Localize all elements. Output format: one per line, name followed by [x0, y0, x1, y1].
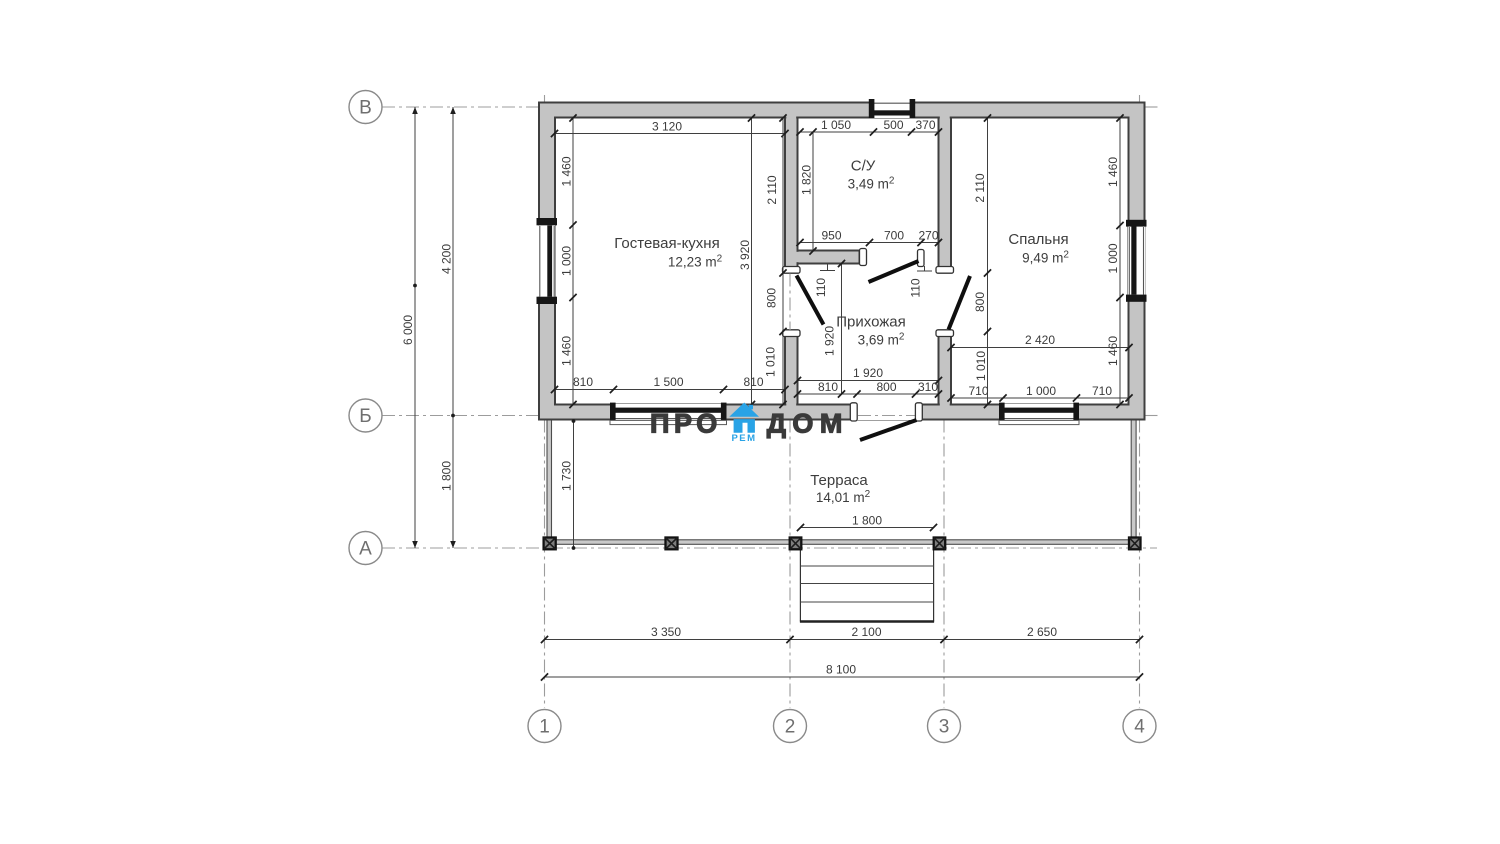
svg-text:950: 950: [821, 229, 841, 243]
svg-text:1 730: 1 730: [560, 461, 574, 491]
svg-text:3 920: 3 920: [738, 240, 752, 270]
svg-text:710: 710: [1092, 384, 1112, 398]
svg-text:1 010: 1 010: [974, 351, 988, 381]
svg-text:2 650: 2 650: [1027, 625, 1057, 639]
svg-text:710: 710: [968, 384, 988, 398]
svg-text:310: 310: [918, 380, 938, 394]
svg-text:Гостевая-кухня: Гостевая-кухня: [614, 235, 719, 252]
svg-text:3,69 m2: 3,69 m2: [858, 332, 905, 348]
svg-text:РЕМ: РЕМ: [731, 433, 756, 444]
svg-text:1 820: 1 820: [800, 165, 814, 195]
svg-text:3: 3: [939, 717, 950, 738]
svg-text:1 050: 1 050: [821, 118, 851, 132]
svg-text:1 800: 1 800: [852, 514, 882, 528]
svg-text:500: 500: [883, 118, 903, 132]
svg-text:12,23 m2: 12,23 m2: [668, 254, 723, 270]
svg-text:1 460: 1 460: [1106, 336, 1120, 366]
svg-text:270: 270: [918, 229, 938, 243]
svg-text:Спальня: Спальня: [1008, 231, 1068, 248]
svg-text:2: 2: [785, 717, 796, 738]
svg-text:1 460: 1 460: [1106, 157, 1120, 187]
svg-text:Терраса: Терраса: [810, 472, 868, 489]
svg-text:3,49 m2: 3,49 m2: [848, 176, 895, 192]
svg-text:1 800: 1 800: [440, 461, 454, 491]
svg-text:1 000: 1 000: [1026, 384, 1056, 398]
svg-text:800: 800: [876, 380, 896, 394]
svg-text:1 920: 1 920: [823, 326, 837, 356]
svg-text:С/У: С/У: [851, 158, 876, 175]
svg-text:2 110: 2 110: [765, 175, 779, 204]
svg-text:Б: Б: [359, 406, 371, 427]
svg-text:370: 370: [915, 118, 935, 132]
svg-text:4 200: 4 200: [440, 244, 454, 274]
svg-text:1 000: 1 000: [560, 246, 574, 276]
svg-text:6 000: 6 000: [401, 315, 415, 345]
svg-text:Прихожая: Прихожая: [836, 314, 906, 331]
svg-text:810: 810: [573, 375, 593, 389]
svg-text:1 500: 1 500: [653, 375, 683, 389]
svg-text:1 000: 1 000: [1106, 243, 1120, 273]
svg-text:110: 110: [909, 278, 923, 297]
svg-text:1 460: 1 460: [560, 336, 574, 366]
svg-text:1: 1: [539, 717, 550, 738]
svg-text:3 350: 3 350: [651, 625, 681, 639]
svg-text:110: 110: [814, 278, 828, 297]
svg-text:9,49 m2: 9,49 m2: [1022, 250, 1069, 266]
svg-text:810: 810: [818, 380, 838, 394]
svg-text:2 110: 2 110: [973, 173, 987, 202]
svg-text:ДОМ: ДОМ: [767, 409, 849, 439]
svg-text:4: 4: [1134, 717, 1145, 738]
svg-text:А: А: [359, 539, 372, 560]
svg-text:В: В: [359, 98, 372, 119]
svg-text:810: 810: [743, 375, 763, 389]
svg-text:2 420: 2 420: [1025, 333, 1055, 347]
svg-text:3 120: 3 120: [652, 120, 682, 134]
svg-text:1 920: 1 920: [853, 366, 883, 380]
svg-text:ПРО: ПРО: [650, 409, 722, 439]
svg-text:800: 800: [973, 292, 987, 312]
svg-text:800: 800: [765, 288, 779, 308]
svg-text:1 460: 1 460: [560, 156, 574, 186]
svg-text:1 010: 1 010: [764, 347, 778, 377]
svg-text:8 100: 8 100: [826, 663, 856, 677]
svg-text:700: 700: [884, 229, 904, 243]
svg-text:14,01 m2: 14,01 m2: [816, 489, 871, 505]
svg-text:2 100: 2 100: [851, 625, 881, 639]
